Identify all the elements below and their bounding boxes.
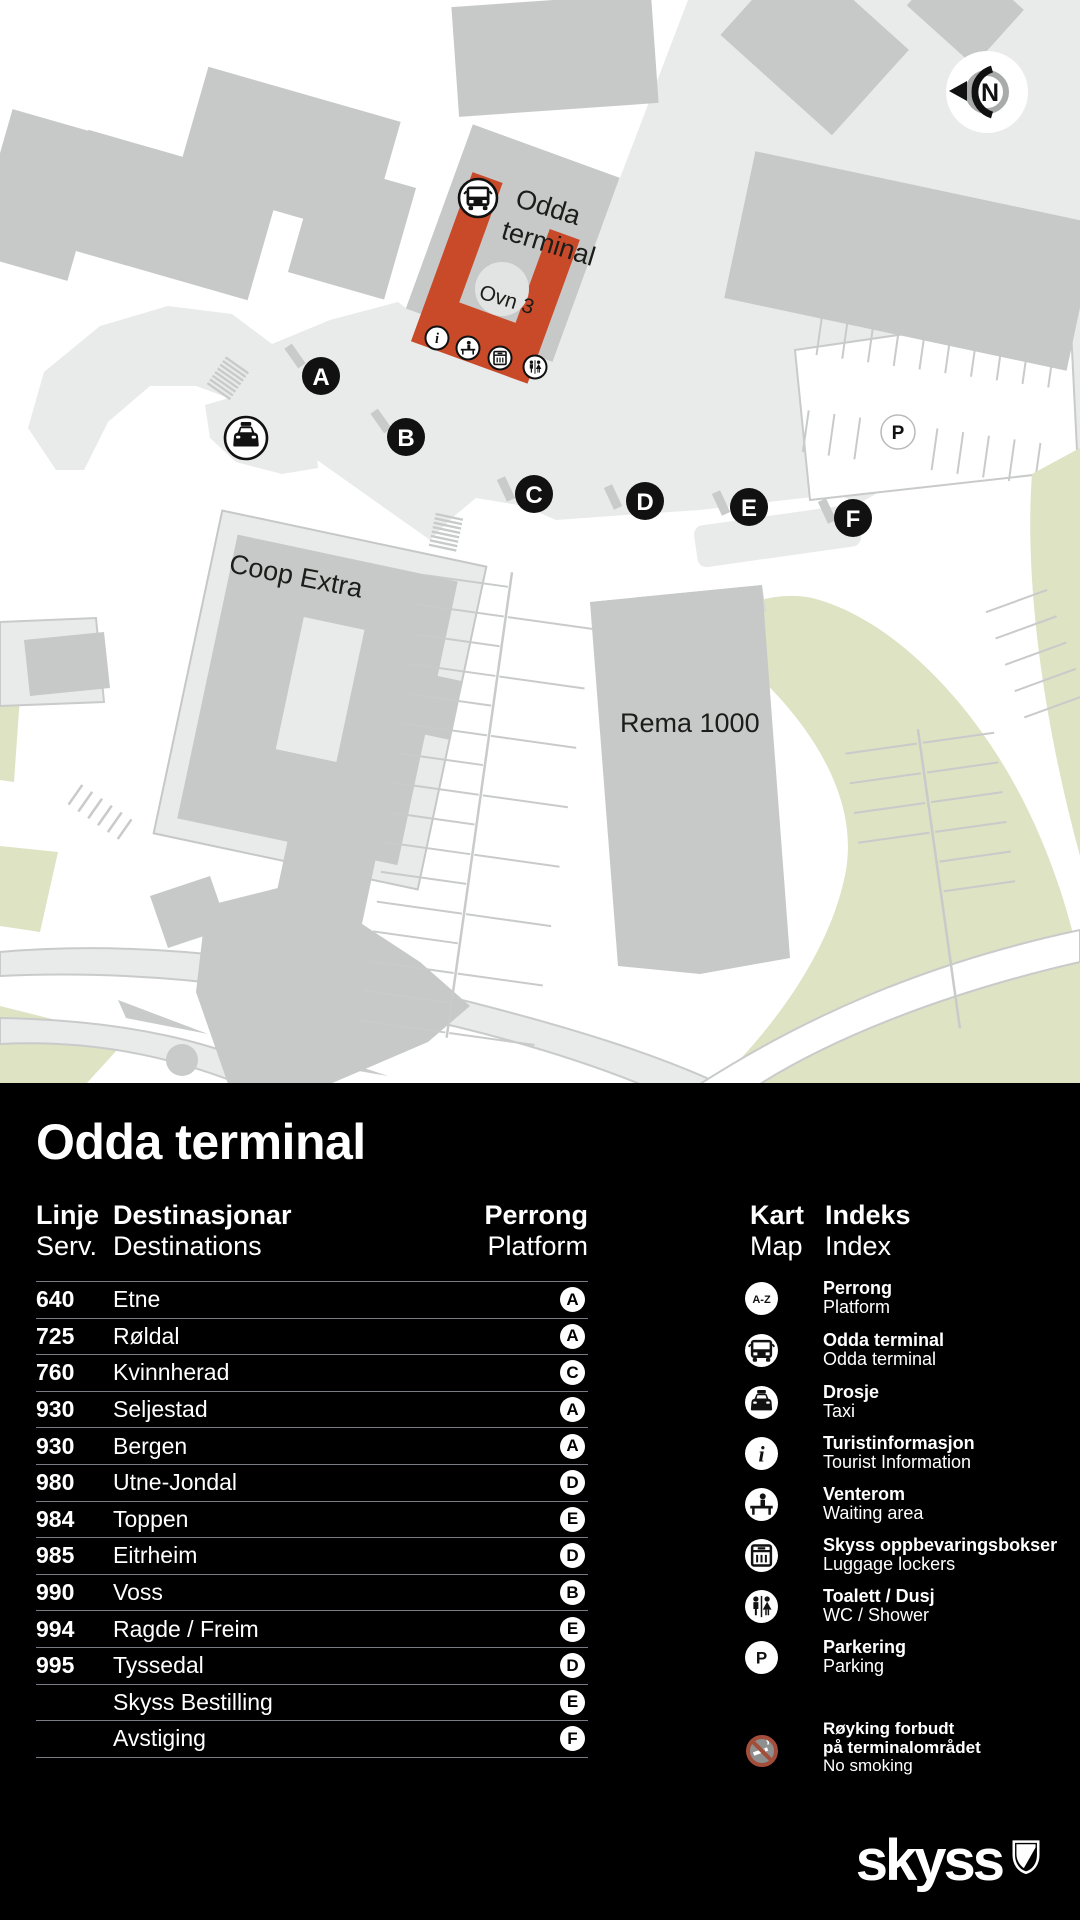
platform-badge: E	[560, 1617, 585, 1642]
platform-badge: A	[560, 1434, 585, 1459]
table-row: 980 Utne-Jondal D	[36, 1464, 588, 1501]
bus-icon	[745, 1334, 778, 1367]
table-row: 760 Kvinnherad C	[36, 1354, 588, 1391]
svg-text:A-Z: A-Z	[752, 1294, 771, 1306]
column-header-platform: Perrong Platform	[380, 1200, 588, 1262]
line-number: 984	[36, 1506, 113, 1533]
parking-icon: P	[745, 1641, 778, 1674]
platform-marker-b: B	[387, 418, 425, 456]
taxi-icon	[225, 417, 267, 459]
waiting-icon	[745, 1488, 778, 1521]
destination: Toppen	[113, 1506, 560, 1533]
wc-icon	[745, 1590, 778, 1623]
destination: Kvinnherad	[113, 1359, 560, 1386]
index-header-map: Kart Map	[750, 1200, 804, 1262]
line-number: 930	[36, 1433, 113, 1460]
destination: Voss	[113, 1579, 560, 1606]
table-row: 995 Tyssedal D	[36, 1647, 588, 1684]
locker-icon	[745, 1539, 778, 1572]
svg-text:C: C	[525, 482, 542, 509]
platform-badge: C	[560, 1360, 585, 1385]
svg-text:N: N	[981, 79, 999, 107]
table-row: 640 Etne A	[36, 1281, 588, 1318]
table-row: Avstiging F	[36, 1720, 588, 1757]
column-header-line: Linje Serv.	[36, 1200, 99, 1262]
line-number: 990	[36, 1579, 113, 1606]
platform-badge: E	[560, 1507, 585, 1532]
taxi-icon	[745, 1386, 778, 1419]
line-number: 980	[36, 1469, 113, 1496]
platform-badge: A	[560, 1324, 585, 1349]
platform-badge: D	[560, 1543, 585, 1568]
svg-text:E: E	[741, 495, 757, 522]
destination: Etne	[113, 1286, 560, 1313]
platform-marker-c: C	[515, 475, 553, 513]
table-row: 930 Seljestad A	[36, 1391, 588, 1428]
svg-text:A: A	[312, 364, 329, 391]
platform-badge: A	[560, 1287, 585, 1312]
skyss-wordmark: skyss	[790, 1827, 1002, 1894]
platform-badge: A	[560, 1397, 585, 1422]
line-number: 760	[36, 1359, 113, 1386]
page-title: Odda terminal	[36, 1113, 366, 1171]
info-panel: Odda terminal Linje Serv. Destinasjonar …	[0, 1083, 1080, 1920]
line-number: 995	[36, 1652, 113, 1679]
north-compass-icon: N	[946, 51, 1028, 133]
platform-marker-a: A	[302, 357, 340, 395]
platform-marker-e: E	[730, 488, 768, 526]
line-number: 994	[36, 1616, 113, 1643]
platform-badge: F	[560, 1726, 585, 1751]
info-icon	[435, 331, 439, 347]
table-row: 984 Toppen E	[36, 1501, 588, 1538]
info-icon	[745, 1437, 778, 1470]
index-header-index: Indeks Index	[825, 1200, 911, 1262]
svg-text:B: B	[397, 425, 414, 452]
terminal-poster: i	[0, 0, 1080, 1920]
rema-label: Rema 1000	[620, 708, 760, 738]
destination: Bergen	[113, 1433, 560, 1460]
destination: Tyssedal	[113, 1652, 560, 1679]
parking-icon: P	[881, 415, 915, 449]
platform-badge: D	[560, 1653, 585, 1678]
destination: Røldal	[113, 1323, 560, 1350]
departures-table: 640 Etne A 725 Røldal A 760 Kvinnherad C…	[36, 1281, 588, 1758]
platform-badge: D	[560, 1470, 585, 1495]
destination: Eitrheim	[113, 1542, 560, 1569]
destination: Skyss Bestilling	[113, 1689, 560, 1716]
destination: Utne-Jondal	[113, 1469, 560, 1496]
no-smoking-text: Røyking forbudt på terminalområdet No sm…	[823, 1720, 981, 1776]
table-row: 930 Bergen A	[36, 1427, 588, 1464]
skyss-shield-icon	[1012, 1840, 1040, 1874]
table-row: 725 Røldal A	[36, 1318, 588, 1355]
line-number: 640	[36, 1286, 113, 1313]
platform-badge: B	[560, 1580, 585, 1605]
platform-marker-d: D	[626, 482, 664, 520]
roundabout	[166, 1044, 198, 1076]
line-number: 930	[36, 1396, 113, 1423]
destination: Seljestad	[113, 1396, 560, 1423]
svg-text:P: P	[892, 423, 905, 444]
terminal-bus-icon	[459, 179, 497, 217]
building	[24, 632, 110, 696]
svg-text:P: P	[756, 1648, 767, 1667]
table-row: 994 Ragde / Freim E	[36, 1610, 588, 1647]
column-header-destinations: Destinasjonar Destinations	[113, 1200, 292, 1262]
destination: Avstiging	[113, 1725, 560, 1752]
table-row: Skyss Bestilling E	[36, 1684, 588, 1721]
az-icon: A-Z	[745, 1282, 778, 1315]
no-smoking-icon	[745, 1734, 779, 1768]
rema-building	[590, 585, 790, 974]
table-row: 990 Voss B	[36, 1574, 588, 1611]
svg-text:D: D	[636, 489, 653, 516]
platform-badge: E	[560, 1690, 585, 1715]
table-row: 985 Eitrheim D	[36, 1537, 588, 1574]
platform-marker-f: F	[834, 499, 872, 537]
destination: Ragde / Freim	[113, 1616, 560, 1643]
line-number: 985	[36, 1542, 113, 1569]
line-number: 725	[36, 1323, 113, 1350]
terminal-map: i	[0, 0, 1080, 1084]
svg-text:F: F	[846, 506, 861, 533]
